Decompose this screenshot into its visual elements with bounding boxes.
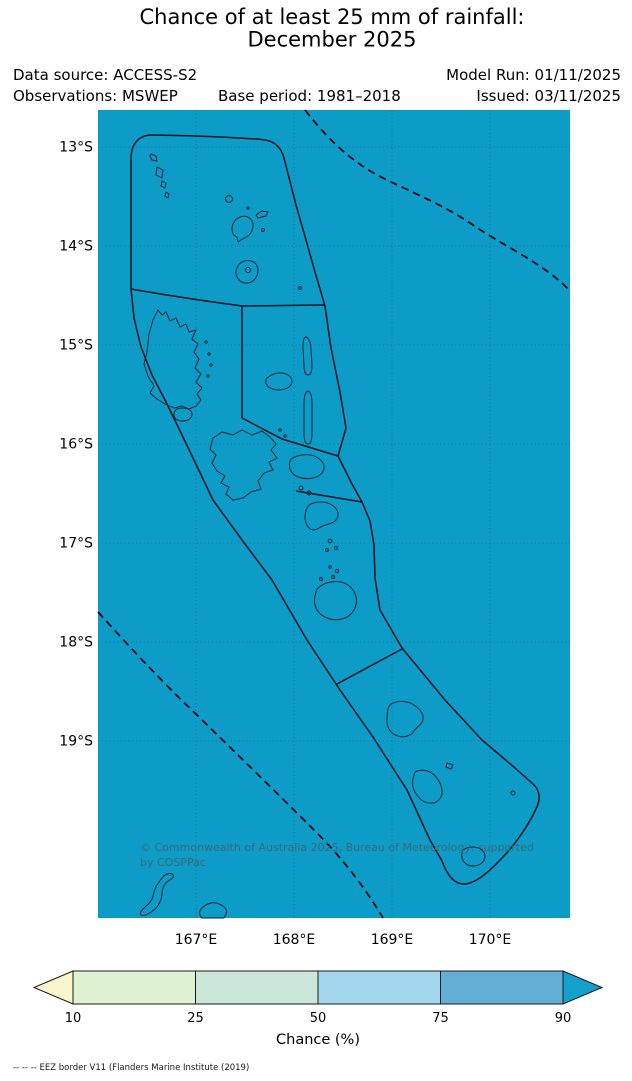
latitude-axis-labels: 13°S 14°S 15°S 16°S 17°S 18°S 19°S — [59, 140, 93, 750]
colorbar-tick: 10 — [65, 1011, 82, 1026]
lon-tick-label: 169°E — [371, 932, 414, 948]
lat-tick-label: 17°S — [59, 536, 93, 552]
colorbar-segment-10-25 — [73, 971, 196, 1004]
lat-tick-label: 14°S — [59, 239, 93, 255]
colorbar-tick: 25 — [187, 1011, 204, 1026]
lon-tick-label: 170°E — [469, 932, 512, 948]
colorbar-tick: 50 — [310, 1011, 327, 1026]
lat-tick-label: 15°S — [59, 338, 93, 354]
title-line-1: Chance of at least 25 mm of rainfall: — [139, 5, 524, 29]
data-source-text: Data source: ACCESS-S2 — [13, 66, 197, 84]
rainfall-outlook-figure: Chance of at least 25 mm of rainfall: De… — [0, 0, 632, 1081]
colorbar-left-arrow — [34, 971, 73, 1004]
lat-tick-label: 16°S — [59, 437, 93, 453]
observations-text: Observations: MSWEP — [13, 87, 178, 105]
metadata-block: Data source: ACCESS-S2 Model Run: 01/11/… — [13, 66, 621, 105]
issued-text: Issued: 03/11/2025 — [476, 87, 621, 105]
page-title: Chance of at least 25 mm of rainfall: De… — [139, 5, 524, 52]
colorbar-right-arrow — [563, 971, 602, 1004]
map-sea — [98, 110, 570, 918]
lat-tick-label: 18°S — [59, 635, 93, 651]
colorbar-segment-50-75 — [318, 971, 441, 1004]
copyright-line-1: © Commonwealth of Australia 2025, Bureau… — [140, 841, 534, 854]
colorbar-tick: 75 — [432, 1011, 449, 1026]
title-line-2: December 2025 — [247, 28, 416, 52]
lon-tick-label: 168°E — [273, 932, 316, 948]
lat-tick-label: 19°S — [59, 734, 93, 750]
colorbar: 10 25 50 75 90 Chance (%) — [34, 971, 602, 1048]
model-run-text: Model Run: 01/11/2025 — [446, 66, 621, 84]
colorbar-tick-labels: 10 25 50 75 90 — [65, 1011, 572, 1026]
colorbar-segment-25-50 — [196, 971, 319, 1004]
longitude-axis-labels: 167°E 168°E 169°E 170°E — [175, 932, 512, 948]
eez-source-note: -- -- -- EEZ border V11 (Flanders Marine… — [13, 1063, 249, 1073]
colorbar-tick: 90 — [555, 1011, 572, 1026]
copyright-line-2: by COSPPac — [140, 856, 206, 869]
colorbar-axis-label: Chance (%) — [276, 1032, 360, 1048]
lat-tick-label: 13°S — [59, 140, 93, 156]
colorbar-segment-75-90 — [441, 971, 564, 1004]
lon-tick-label: 167°E — [175, 932, 218, 948]
base-period-text: Base period: 1981–2018 — [218, 87, 401, 105]
map-panel: © Commonwealth of Australia 2025, Bureau… — [59, 110, 570, 948]
